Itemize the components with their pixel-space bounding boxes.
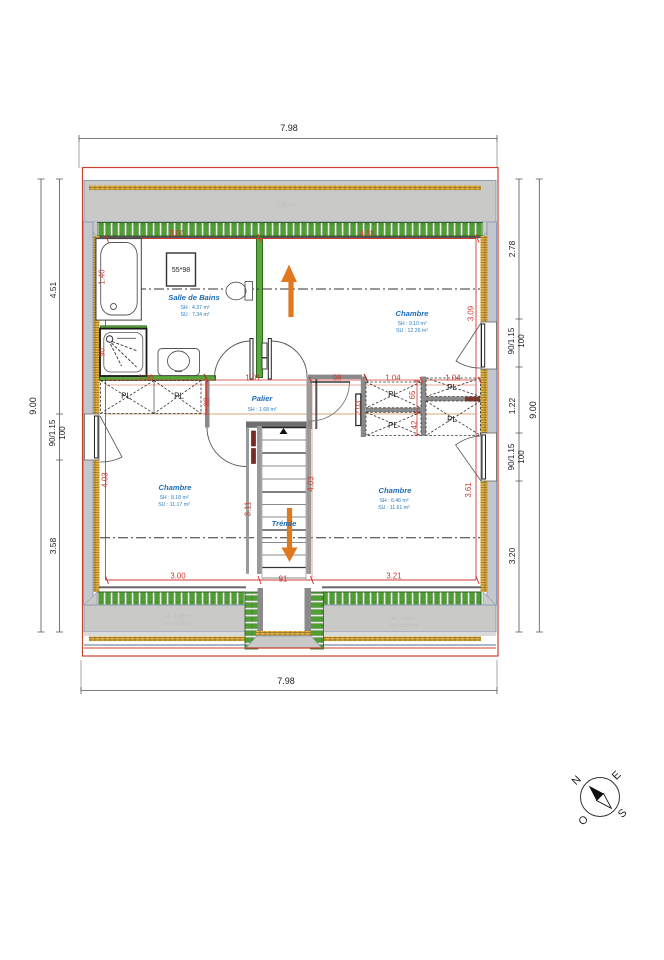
svg-text:3.11: 3.11 bbox=[244, 502, 253, 517]
svg-text:1.40: 1.40 bbox=[98, 269, 107, 285]
svg-text:SU : 7.34 m²: SU : 7.34 m² bbox=[180, 312, 209, 318]
svg-text:4.03: 4.03 bbox=[307, 476, 316, 491]
svg-text:42: 42 bbox=[410, 421, 419, 430]
svg-text:SH : 9.10 m²: SH : 9.10 m² bbox=[397, 321, 426, 327]
svg-text:PL: PL bbox=[447, 383, 457, 392]
svg-text:PL: PL bbox=[388, 421, 398, 430]
svg-text:90/1.15: 90/1.15 bbox=[507, 327, 516, 354]
svg-text:1.22: 1.22 bbox=[507, 397, 517, 414]
svg-text:2.00: 2.00 bbox=[138, 373, 154, 382]
svg-text:3.00: 3.00 bbox=[169, 229, 185, 238]
svg-text:100: 100 bbox=[58, 426, 67, 440]
svg-text:7.98: 7.98 bbox=[277, 676, 295, 686]
svg-text:90/1.15: 90/1.15 bbox=[507, 443, 516, 470]
svg-text:9.00: 9.00 bbox=[28, 397, 38, 415]
svg-text:3.61: 3.61 bbox=[464, 482, 473, 497]
svg-text:1.80 m: 1.80 m bbox=[276, 202, 296, 209]
svg-text:SU : 11.61 m²: SU : 11.61 m² bbox=[378, 505, 410, 511]
svg-text:Trémie: Trémie bbox=[272, 519, 298, 528]
svg-text:SU : 12.26 m²: SU : 12.26 m² bbox=[396, 328, 428, 334]
svg-text:Salle de Bains: Salle de Bains bbox=[168, 293, 220, 302]
svg-text:SH : 4.37 m²: SH : 4.37 m² bbox=[180, 305, 209, 311]
svg-text:98: 98 bbox=[203, 398, 212, 407]
svg-text:SU : 11.17 m²: SU : 11.17 m² bbox=[158, 502, 190, 508]
svg-text:H : 1.80 m: H : 1.80 m bbox=[391, 616, 417, 622]
svg-text:2.03: 2.03 bbox=[354, 401, 363, 416]
svg-text:3.58: 3.58 bbox=[48, 537, 58, 554]
svg-text:Chambre: Chambre bbox=[396, 309, 430, 318]
svg-text:100: 100 bbox=[517, 334, 526, 348]
svg-text:91: 91 bbox=[279, 575, 288, 584]
svg-text:4.51: 4.51 bbox=[48, 281, 58, 298]
svg-text:9.00: 9.00 bbox=[528, 401, 538, 419]
svg-text:4.03: 4.03 bbox=[101, 472, 110, 487]
svg-text:55*98: 55*98 bbox=[172, 267, 190, 274]
svg-text:1.01: 1.01 bbox=[245, 373, 260, 382]
svg-text:90/1.15: 90/1.15 bbox=[48, 419, 57, 446]
svg-text:1.04: 1.04 bbox=[385, 373, 401, 382]
svg-text:PL: PL bbox=[447, 415, 457, 424]
svg-text:4.18: 4.18 bbox=[359, 229, 374, 238]
svg-text:65: 65 bbox=[408, 390, 417, 399]
svg-text:Chambre: Chambre bbox=[159, 483, 193, 492]
svg-text:2.78: 2.78 bbox=[507, 240, 517, 257]
svg-text:3.09: 3.09 bbox=[467, 306, 476, 321]
svg-text:PL: PL bbox=[121, 392, 131, 401]
svg-text:PL: PL bbox=[388, 390, 398, 399]
svg-text:H : 1.80 m: H : 1.80 m bbox=[165, 614, 191, 620]
svg-text:SU : 1.80 m: SU : 1.80 m bbox=[163, 621, 192, 627]
svg-text:3.20: 3.20 bbox=[507, 547, 517, 564]
svg-text:Chambre: Chambre bbox=[379, 486, 413, 495]
svg-text:3.00: 3.00 bbox=[170, 572, 186, 581]
svg-text:SH : 6.46 m²: SH : 6.46 m² bbox=[379, 498, 408, 504]
svg-text:90: 90 bbox=[98, 348, 107, 357]
svg-text:7.98: 7.98 bbox=[280, 123, 298, 133]
svg-text:100: 100 bbox=[517, 450, 526, 464]
svg-text:SH : 1.68 m²: SH : 1.68 m² bbox=[247, 407, 276, 413]
svg-text:Palier: Palier bbox=[252, 394, 274, 403]
svg-text:1.04: 1.04 bbox=[445, 373, 461, 382]
svg-text:98: 98 bbox=[333, 373, 342, 382]
svg-text:SH : 8.18 m²: SH : 8.18 m² bbox=[159, 495, 188, 501]
svg-text:3.21: 3.21 bbox=[386, 572, 401, 581]
svg-text:SU : 1.80 m: SU : 1.80 m bbox=[389, 623, 418, 629]
svg-text:PL: PL bbox=[174, 392, 184, 401]
